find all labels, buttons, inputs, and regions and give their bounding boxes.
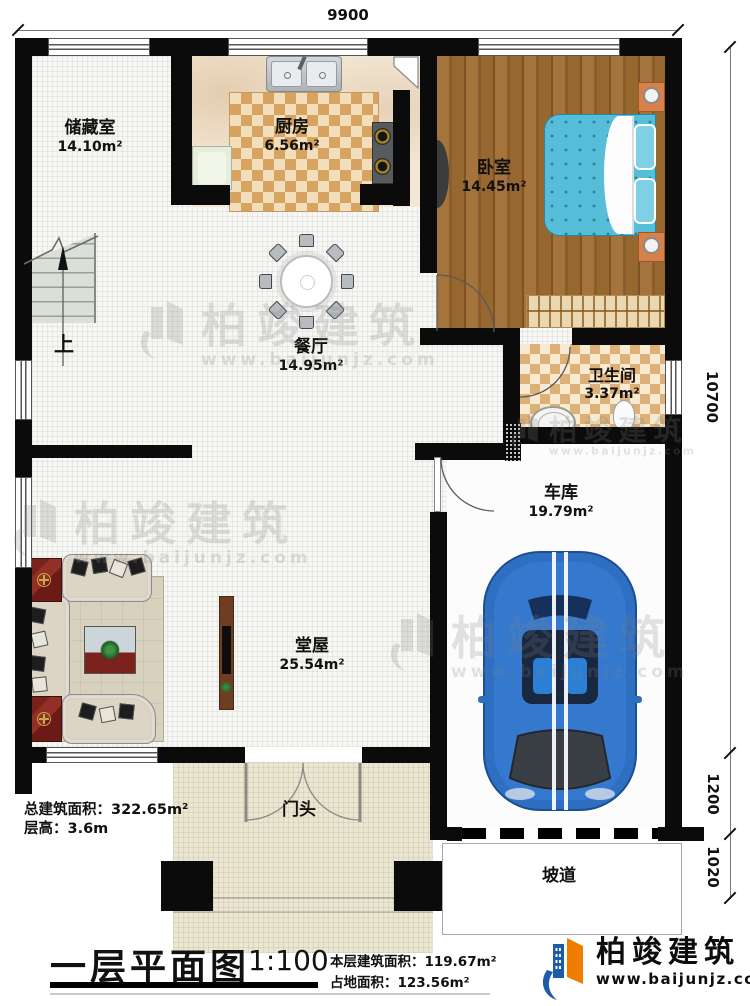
porch-label: 门头 [259,800,339,821]
brand-logo: 柏竣建筑 www.baijunjz.com [538,936,750,1002]
throw-pillow [31,676,47,692]
garage-corner [658,827,704,841]
wall-bedroom-bathroom [420,328,520,345]
garage-area: 19.79m² [511,504,611,522]
wall-bathroom-left [503,345,520,427]
toilet-bowl [613,400,635,430]
fridge-inner [198,152,226,184]
bathroom-area: 3.37m² [562,386,662,404]
tv [222,626,231,674]
ramp-area [442,843,682,935]
garage-label: 车库 19.79m² [511,483,611,522]
hall-area: 25.54m² [262,657,362,675]
dining-chair [299,316,314,329]
brand-site: www.baijunjz.com [596,970,750,988]
dining-chair [259,274,272,289]
garage-door-leaf [434,457,441,512]
wall-dining-hall-partition [15,445,192,458]
porch-step-line [173,911,433,913]
stairs-up-text: 上 [50,332,78,357]
ramp-label: 坡道 [519,866,599,887]
storage-name: 储藏室 [40,118,140,139]
duct-shaft [505,423,521,461]
window-kitchen-top [228,38,368,56]
wall-garage-left [430,512,447,840]
storage-label: 储藏室 14.10m² [40,118,140,157]
wall-bedroom-left [420,56,437,273]
dim-right-line [730,48,731,899]
wall-garage-left [430,443,447,455]
window-hall-bottom [46,747,158,763]
window-left-upper [15,360,32,420]
plan-areas: 本层建筑面积：119.67m² 占地面积：123.56m² [330,952,497,994]
title-rule-thick [50,982,318,988]
dining-table-center [300,275,315,290]
window-left-lower [15,477,32,568]
throw-pillow [118,703,134,719]
dining-chair [299,234,314,247]
hall-name: 堂屋 [262,636,362,657]
bed-pillow [634,124,656,170]
wall-bathroom-bottom [503,427,682,444]
total-area-text: 总建筑面积：322.65m² [24,801,188,820]
exterior-wall-left [15,38,32,360]
exterior-wall-bottom [15,747,46,763]
window-bathroom-right [665,360,682,415]
plan-scale: 1:100 [248,944,329,977]
building-summary: 总建筑面积：322.65m² 层高：3.6m [24,801,188,839]
bathroom-name: 卫生间 [562,366,662,386]
kitchen-name: 厨房 [242,117,342,138]
exterior-wall-top [368,38,478,56]
ramp-name: 坡道 [519,866,599,887]
cabinet-plant [221,682,231,692]
dining-label: 餐厅 14.95m² [261,337,361,376]
porch-floor [173,762,433,953]
bedroom-name: 卧室 [444,158,544,179]
floor-area-text: 本层建筑面积：119.67m² [330,952,497,973]
dim-right-seg1-value: 1200 [704,769,722,819]
dim-right-main-value: 10700 [703,367,721,427]
garage-door-dashed [462,828,658,839]
bedroom-label: 卧室 14.45m² [444,158,544,197]
sink-drain [284,72,291,79]
side-table-ornament [37,573,51,587]
hall-label: 堂屋 25.54m² [262,636,362,675]
throw-pillow [99,706,117,724]
bed-pillow [634,178,656,224]
dim-top-line [18,30,678,31]
exterior-wall-right [665,415,682,838]
stairs-up-label: 上 [50,332,78,357]
brand-logo-icon [538,936,590,1002]
window-bedroom-top [478,38,620,56]
brand-name: 柏竣建筑 [596,936,750,970]
wardrobe [526,295,665,328]
porch-name: 门头 [259,800,339,821]
throw-pillow [91,557,108,574]
wall-storage-kitchen [171,56,192,190]
exterior-wall-bottom [362,747,430,763]
floor-height-text: 层高：3.6m [24,820,188,839]
floor-plan: 储藏室 14.10m² 厨房 6.56m² 卧室 14.45m² 餐厅 14.9… [0,0,750,1006]
stove-burner [374,158,391,175]
wall-kitchen-bottom [171,185,230,205]
bedroom-area: 14.45m² [444,179,544,197]
exterior-wall-top [150,38,228,56]
footprint-text: 占地面积：123.56m² [330,973,497,994]
window-storage-top [48,38,150,56]
storage-area: 14.10m² [40,139,140,157]
side-table-ornament [37,712,51,726]
bathroom-label: 卫生间 3.37m² [562,366,662,404]
sink-drain [319,72,326,79]
exterior-wall-right [665,38,682,360]
porch-column [394,861,442,911]
dining-chair [341,274,354,289]
kitchen-label: 厨房 6.56m² [242,117,342,156]
dining-name: 餐厅 [261,337,361,358]
exterior-wall-bottom [158,747,245,763]
dim-right-seg2-value: 1020 [704,842,722,892]
nightstand-clock [643,237,660,254]
wall-kitchen-right [393,90,410,206]
garage-name: 车库 [511,483,611,504]
nightstand-clock [643,87,660,104]
stove-burner [374,128,391,145]
garage-corner [447,827,462,841]
kitchen-area: 6.56m² [242,138,342,156]
dim-top-value: 9900 [18,6,678,24]
coffee-table-plant [100,640,120,660]
porch-column [161,861,213,911]
wall-bedroom-bathroom [572,328,665,345]
title-rule-thin [50,993,490,995]
bed-blanket [604,116,634,234]
staircase-edge [94,233,96,323]
dining-area: 14.95m² [261,358,361,376]
